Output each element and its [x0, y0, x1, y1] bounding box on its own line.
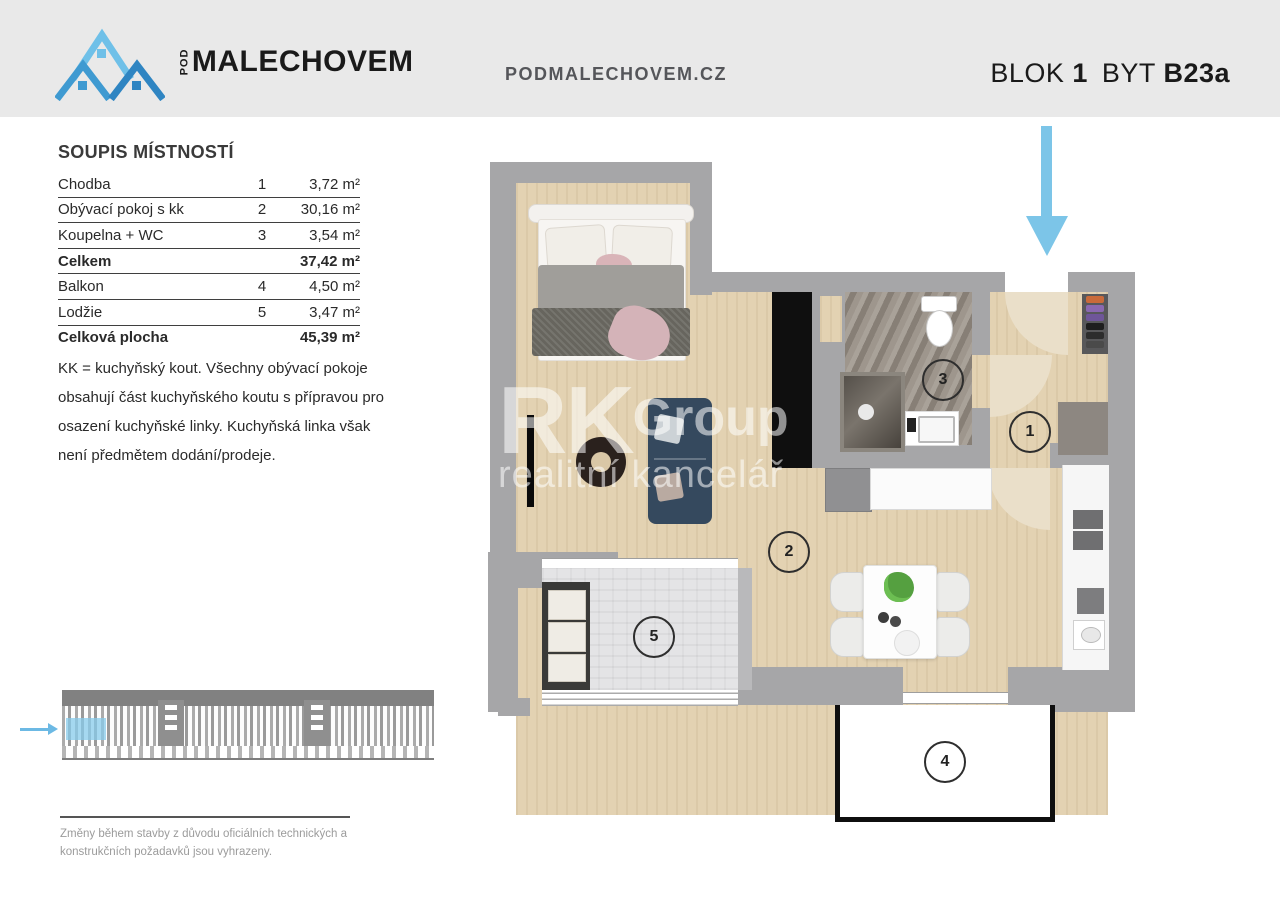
wall-top-left	[490, 162, 712, 183]
wall-left	[490, 162, 516, 552]
blok-value: 1	[1072, 58, 1088, 88]
table-plate	[878, 612, 889, 623]
room-number-loggia: 5	[633, 616, 675, 658]
byt-label: BYT	[1102, 58, 1156, 88]
unit-pointer-arrow	[20, 728, 50, 731]
unit-identifier: BLOK 1BYT B23a	[990, 58, 1230, 89]
wall-bath-right-lower	[972, 408, 990, 445]
wall-left-foot	[498, 698, 530, 716]
cooktop	[1073, 531, 1103, 550]
wall-right	[1108, 272, 1135, 712]
room-number-bathroom: 3	[922, 359, 964, 401]
brochure-page: POD MALECHOVEM PODMALECHOVEM.CZ BLOK 1BY…	[0, 0, 1280, 908]
table-row: Lodžie53,47 m²	[58, 300, 360, 326]
table-plate	[894, 630, 920, 656]
blok-label: BLOK	[990, 58, 1064, 88]
logo-name-text: MALECHOVEM	[192, 45, 414, 79]
wall-left-lower	[488, 552, 518, 712]
cooktop	[1073, 510, 1103, 529]
entrance-arrow-shaft	[1041, 126, 1052, 218]
room-number-hallway: 1	[1009, 411, 1051, 453]
room-number-balcony: 4	[924, 741, 966, 783]
kitchen-counter-right	[1062, 465, 1109, 670]
kitchen-sink	[1073, 620, 1105, 650]
balcony-window	[903, 692, 1008, 704]
unit-pointer-arrow-head	[48, 723, 58, 735]
table-row: Balkon44,50 m²	[58, 274, 360, 300]
vanity-accessory	[907, 418, 916, 432]
loggia-right-wall	[738, 568, 752, 690]
bathroom-vanity	[905, 411, 959, 446]
hall-closet	[1058, 402, 1108, 455]
vanity-basin	[918, 416, 955, 443]
elevation-facade	[62, 706, 434, 746]
table-row: Koupelna + WC33,54 m²	[58, 223, 360, 249]
kitchen-counter-top	[870, 468, 992, 510]
logo-pod-text: POD	[178, 49, 190, 76]
kitchen-cabinet-gray	[825, 468, 872, 512]
elevation-roof	[62, 690, 434, 706]
dining-chair	[830, 572, 864, 612]
elevation-stair-tower	[158, 700, 184, 746]
wall-bath-right-upper	[972, 292, 990, 355]
toilet-bowl	[926, 310, 953, 347]
website-text: PODMALECHOVEM.CZ	[505, 64, 727, 85]
dining-chair	[936, 617, 970, 657]
dining-table	[863, 565, 937, 659]
sofa-pillow	[654, 414, 685, 445]
room-list-title: SOUPIS MÍSTNOSTÍ	[58, 142, 234, 163]
room-list-table: Chodba13,72 m² Obývací pokoj s kk230,16 …	[58, 172, 360, 350]
roof-logo-icon	[55, 23, 165, 101]
header-bar: POD MALECHOVEM PODMALECHOVEM.CZ BLOK 1BY…	[0, 0, 1280, 117]
sofa-pillow	[654, 472, 684, 502]
elevation-ground-floor	[62, 746, 434, 760]
round-rug	[576, 437, 626, 487]
disclaimer-text: Změny během stavby z důvodu oficiálních …	[60, 826, 380, 862]
unit-highlight	[66, 718, 106, 740]
niche-floor	[820, 296, 842, 342]
shower	[840, 372, 905, 452]
tv	[527, 415, 534, 507]
logo: POD MALECHOVEM	[55, 22, 455, 102]
dining-chair	[830, 617, 864, 657]
table-row: Obývací pokoj s kk230,16 m²	[58, 198, 360, 224]
wall-top-middle	[690, 272, 1005, 292]
kk-note: KK = kuchyňský kout. Všechny obývací pok…	[58, 355, 398, 471]
kitchen-appliance	[1077, 588, 1104, 614]
shoe-rack	[1082, 294, 1108, 354]
shower-head	[858, 404, 874, 420]
table-row-grand-total: Celková plocha45,39 m²	[58, 326, 360, 351]
floor-plan: 1 2 3 4 5 RKGroup realitní kancelář	[480, 120, 1160, 835]
loggia-railing	[542, 690, 738, 706]
dining-chair	[936, 572, 970, 612]
tall-cabinet	[772, 292, 812, 468]
sofa	[648, 398, 712, 524]
table-row-total: Celkem37,42 m²	[58, 249, 360, 275]
elevation-stair-tower	[304, 700, 330, 746]
byt-value: B23a	[1163, 58, 1230, 88]
footer-rule	[60, 816, 350, 818]
room-number-living: 2	[768, 531, 810, 573]
building-elevation	[62, 690, 434, 764]
table-plate	[890, 616, 901, 627]
entrance-arrow-head	[1026, 216, 1068, 256]
table-row: Chodba13,72 m²	[58, 172, 360, 198]
loggia-shelf	[542, 582, 590, 690]
table-plant	[884, 572, 914, 602]
rug-center	[591, 452, 611, 472]
